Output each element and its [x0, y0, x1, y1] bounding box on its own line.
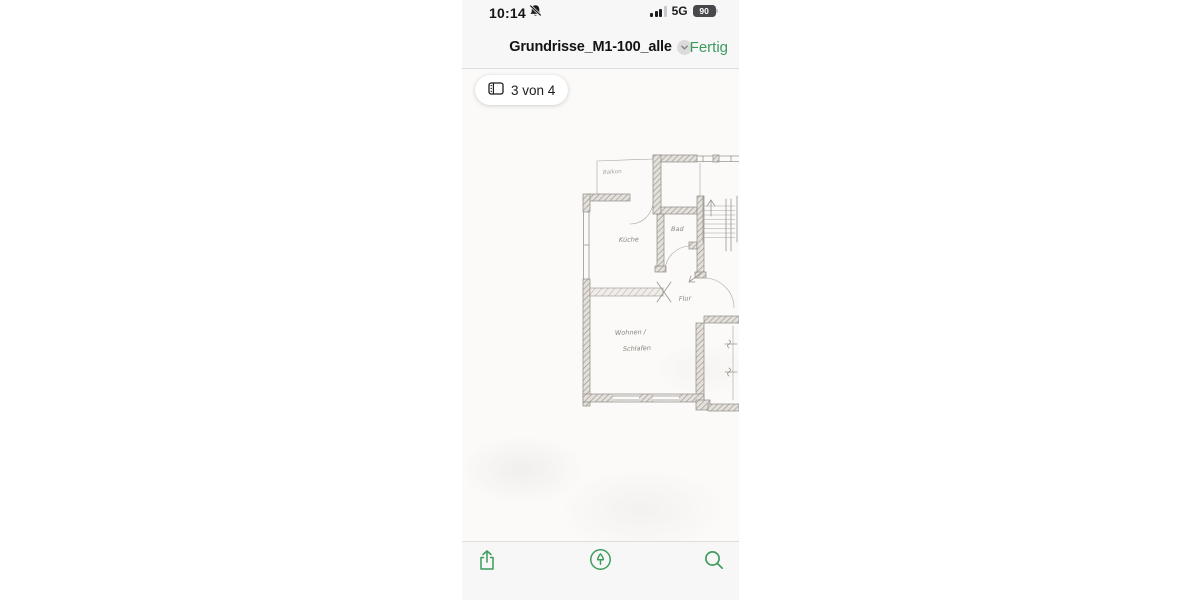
header-bar: 10:14 5G 90 — [462, 0, 739, 69]
room-label-kueche: Küche — [619, 235, 639, 244]
room-label-balkon: Balkon — [603, 169, 623, 176]
share-button[interactable] — [475, 548, 499, 574]
bell-slash-icon — [529, 4, 542, 22]
document-title: Grundrisse_M1-100_alle — [509, 39, 671, 55]
document-viewer-window: 10:14 5G 90 — [462, 0, 739, 600]
markup-icon — [589, 548, 612, 574]
network-type-label: 5G — [672, 4, 688, 18]
navigation-bar: Grundrisse_M1-100_alle Fertig — [462, 26, 739, 68]
screenshot-stage: 10:14 5G 90 — [0, 0, 1200, 600]
markup-button[interactable] — [589, 548, 613, 574]
room-label-wohnen-line1: Wohnen / — [615, 328, 647, 337]
battery-percent: 90 — [693, 5, 716, 17]
search-icon — [703, 549, 725, 574]
status-right-cluster: 5G 90 — [650, 4, 718, 18]
room-label-wohnen-line2: Schlafen — [623, 344, 651, 353]
sidebar-pages-icon — [488, 82, 504, 98]
room-label-flur: Flur — [679, 294, 693, 303]
bottom-toolbar — [462, 541, 739, 600]
floor-plan-drawing[interactable]: Balkon Küche Bad Flur Wohnen / Schlafen — [577, 154, 739, 426]
floor-plan-walls — [583, 155, 739, 411]
cellular-signal-icon — [650, 6, 667, 17]
battery-nub — [716, 9, 718, 14]
document-scroll-view[interactable]: 3 von 4 — [462, 70, 739, 541]
room-label-bad: Bad — [671, 225, 684, 233]
done-button[interactable]: Fertig — [690, 26, 728, 68]
clock-time: 10:14 — [489, 5, 526, 21]
page-indicator-label: 3 von 4 — [511, 83, 555, 98]
battery-icon: 90 — [693, 5, 718, 17]
search-button[interactable] — [702, 548, 726, 574]
share-icon — [476, 548, 498, 575]
page-indicator-button[interactable]: 3 von 4 — [475, 75, 568, 105]
status-bar: 10:14 5G 90 — [462, 4, 739, 26]
status-left-cluster: 10:14 — [489, 4, 542, 22]
